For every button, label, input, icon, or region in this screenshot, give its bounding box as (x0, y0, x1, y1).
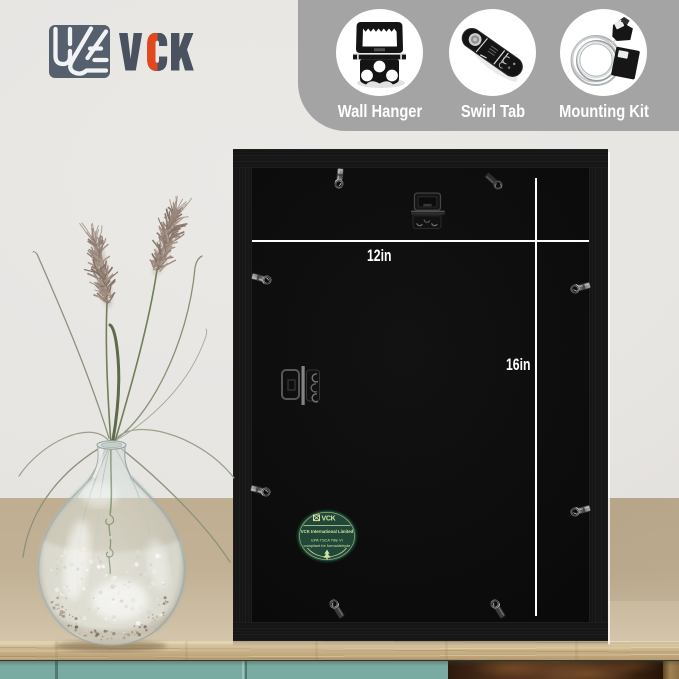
svg-text:VCK: VCK (322, 516, 336, 523)
svg-text:compliant for formaldehyde: compliant for formaldehyde (304, 543, 351, 548)
svg-text:VCK International Limited: VCK International Limited (301, 529, 354, 534)
